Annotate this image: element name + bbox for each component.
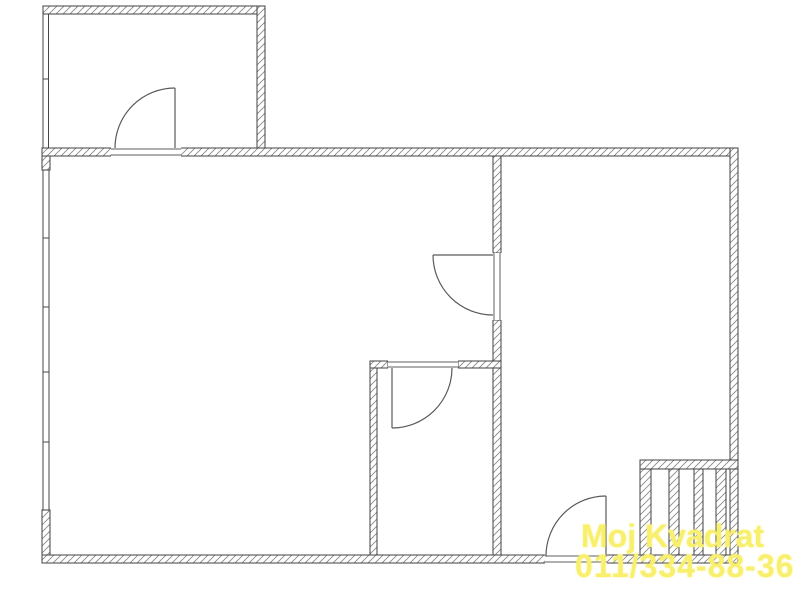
wall-topleftroom-top (43, 6, 265, 14)
watermark-line2: 011/334-88-36 (575, 550, 794, 582)
doors (115, 88, 606, 556)
door-opening-divider (492, 253, 502, 320)
door-openings (111, 147, 607, 564)
walls (42, 6, 738, 563)
wall-left-upper-pier (42, 156, 50, 170)
wall-innerroom-top-left-pier (370, 361, 388, 368)
wall-topleftroom-right (257, 6, 265, 148)
door-swing-arc (392, 368, 452, 428)
door-inner-room (392, 368, 452, 428)
door-swing-arc (433, 255, 493, 315)
wall-innerroom-top-right-pier (458, 361, 501, 368)
door-opening-top-left-room (111, 147, 181, 157)
door-top-left-room (115, 88, 175, 148)
door-swing-arc (115, 88, 175, 148)
wall-divider-upper (493, 156, 501, 253)
door-divider-right-room (433, 255, 493, 315)
wall-divider-lower (493, 320, 501, 555)
floor-plan: Moj Kvadrat 011/334-88-36 (0, 0, 795, 600)
window-band-top-left-room (43, 14, 49, 148)
window-band-main-room (43, 170, 49, 510)
door-opening-inner-room (388, 360, 458, 369)
floor-plan-drawing (0, 0, 795, 600)
wall-innerroom-left (370, 361, 377, 555)
wall-left-lower-pier (42, 510, 50, 555)
shaft-top-bar (640, 460, 738, 469)
wall-exterior-right (730, 148, 738, 563)
windows (43, 14, 49, 510)
